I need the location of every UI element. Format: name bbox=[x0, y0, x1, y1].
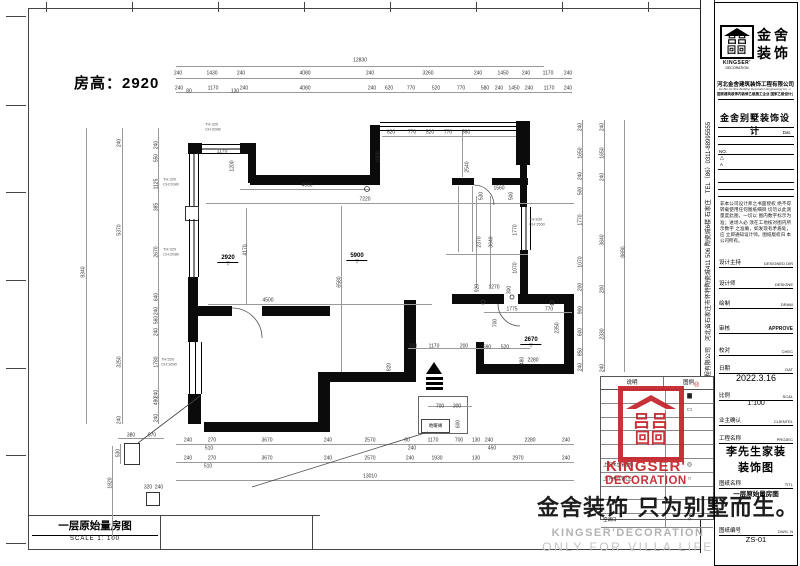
dim-label: 2370 bbox=[478, 236, 483, 247]
dim-label: 700 bbox=[436, 405, 444, 410]
dim-label: 5370 bbox=[118, 224, 123, 235]
department-title: 金舍别墅装饰设计 bbox=[717, 111, 793, 137]
dim-label: 300 bbox=[409, 345, 417, 350]
window-size-label: TH:520CH:1690 bbox=[161, 358, 177, 367]
dim-label: 4080 bbox=[299, 87, 310, 92]
dim-label: 240 bbox=[579, 363, 584, 371]
dim-label: 7220 bbox=[359, 198, 370, 203]
titleblock-value: 装饰图 bbox=[719, 459, 793, 475]
dim-label: 1170 bbox=[429, 345, 440, 350]
titleblock-field: 设计主持DESIGNED DIR bbox=[719, 258, 793, 268]
dim-label: 240 bbox=[485, 439, 493, 444]
brand-name: 装饰 bbox=[757, 43, 791, 63]
dim-label: 240 bbox=[324, 457, 332, 462]
dim-label: 450 bbox=[488, 447, 496, 452]
dim-label: 530 bbox=[480, 192, 485, 200]
dim-label: 500 bbox=[510, 192, 515, 200]
brand-name-en: DECORATION bbox=[719, 66, 755, 70]
dim-label: 4080 bbox=[299, 72, 310, 77]
level-mark: 2920▽ bbox=[217, 246, 238, 266]
window-size-label: TH:320CH:2080 bbox=[163, 178, 179, 187]
dim-label: 770 bbox=[407, 87, 415, 92]
dim-label: 490 bbox=[155, 397, 160, 405]
dim-label: 820 bbox=[388, 363, 393, 371]
dim-label: 1170 bbox=[208, 87, 219, 92]
dim-label: 700 bbox=[455, 439, 463, 444]
dim-label: 1070 bbox=[579, 256, 584, 267]
dim-label: 240 bbox=[155, 486, 163, 491]
registered-mark: ® bbox=[694, 382, 699, 389]
dim-label: 240 bbox=[601, 173, 606, 181]
dim-label: 3670 bbox=[261, 457, 272, 462]
brand-name: 金舍 bbox=[757, 25, 791, 45]
dim-label: 1770 bbox=[579, 214, 584, 225]
dim-label: 300 bbox=[508, 286, 513, 294]
dim-label: 1170 bbox=[544, 87, 555, 92]
dim-label: 130 bbox=[472, 439, 480, 444]
titleblock-field: 校对CHEC bbox=[719, 346, 793, 356]
dim-label: 2970 bbox=[512, 457, 523, 462]
dim-label: 130 bbox=[231, 90, 239, 95]
date-label: Dat. bbox=[783, 130, 791, 135]
dim-label: 240 bbox=[155, 414, 160, 422]
dim-label: 130 bbox=[472, 457, 480, 462]
dim-label: 520 bbox=[432, 87, 440, 92]
dim-label: 770 bbox=[408, 131, 416, 136]
titleblock-value: 2022.3.16 bbox=[719, 373, 793, 383]
dim-label: 4170 bbox=[244, 244, 249, 255]
dim-label: 2330 bbox=[601, 328, 606, 339]
watermark-slogan: 金舍装饰 只为别墅而生。 bbox=[537, 490, 799, 522]
dim-label: 3260 bbox=[422, 72, 433, 77]
dim-label: 1070 bbox=[514, 262, 519, 273]
titleblock-field: 绘制DRAW bbox=[719, 299, 793, 309]
logo-wordmark: DECORATION bbox=[596, 475, 696, 487]
dim-label: 1820 bbox=[109, 477, 114, 488]
dim-label: 240 bbox=[474, 72, 482, 77]
dim-label: 80 bbox=[186, 90, 192, 95]
dim-label: 700 bbox=[494, 319, 499, 327]
dim-label: 380 bbox=[127, 434, 135, 439]
dim-label: 1560 bbox=[493, 187, 504, 192]
dim-label: 4560 bbox=[301, 184, 312, 189]
dim-label: 600 bbox=[457, 420, 462, 428]
titleblock-value: 1:100 bbox=[719, 400, 793, 407]
window-size-label: TH:830CH:1560 bbox=[529, 218, 545, 227]
dim-label: 2280 bbox=[524, 439, 535, 444]
dim-label: 240 bbox=[237, 72, 245, 77]
logo-wordmark: KINGSER' bbox=[596, 458, 696, 475]
dim-label: 2350 bbox=[556, 322, 561, 333]
dim-label: 13010 bbox=[363, 475, 377, 480]
dim-label: 1775 bbox=[506, 308, 517, 313]
dim-label: 850 bbox=[579, 348, 584, 356]
dim-label: 1770 bbox=[514, 224, 519, 235]
dim-label: 620 bbox=[385, 87, 393, 92]
dim-label: 3670 bbox=[261, 439, 272, 444]
dim-label: 270 bbox=[208, 439, 216, 444]
watermark-tagline-en: ONLY FOR VILLA LIFE bbox=[520, 540, 736, 554]
dim-label: 8690 bbox=[622, 246, 627, 257]
logo-square: 吕吕 回回 bbox=[618, 386, 684, 462]
dim-label: 550 bbox=[155, 154, 160, 162]
dim-label: 1450 bbox=[497, 72, 508, 77]
dim-label: 240 bbox=[368, 87, 376, 92]
dim-label: 200 bbox=[460, 345, 468, 350]
dim-label: 240 bbox=[118, 139, 123, 147]
dim-label: 4500 bbox=[262, 299, 273, 304]
dim-label: 520 bbox=[426, 131, 434, 136]
dim-label: 240 bbox=[240, 87, 248, 92]
dim-label: 2540 bbox=[466, 161, 471, 172]
dim-label: 1125 bbox=[155, 179, 160, 190]
revision-mark: △ bbox=[720, 155, 724, 161]
dim-label: 2280 bbox=[527, 359, 538, 364]
dim-label: 1170 bbox=[428, 439, 439, 444]
dim-label: 300 bbox=[453, 405, 461, 410]
dim-label: 240 bbox=[408, 447, 416, 452]
logo-glyph: 回回 bbox=[722, 46, 752, 55]
dim-label: 240 bbox=[175, 87, 183, 92]
dim-label: 2670 bbox=[155, 246, 160, 257]
dim-label: 2570 bbox=[364, 457, 375, 462]
dim-label: 240 bbox=[366, 72, 374, 77]
dim-label: 240 bbox=[525, 87, 533, 92]
dim-label: 240 bbox=[155, 328, 160, 336]
titleblock-field: 审核APPROVE bbox=[719, 324, 793, 334]
dim-label: 240 bbox=[324, 439, 332, 444]
titleblock-field: 业主确认CLIENTEL bbox=[719, 416, 793, 426]
dim-label: 385 bbox=[155, 203, 160, 211]
dim-label: 500 bbox=[579, 187, 584, 195]
dim-label: 580 bbox=[462, 131, 470, 136]
dim-label: 580 bbox=[481, 87, 489, 92]
level-mark: 2670▽ bbox=[520, 328, 541, 348]
dim-label: 60 bbox=[404, 439, 410, 444]
dim-label: 1780 bbox=[155, 356, 160, 367]
dim-label: 2570 bbox=[364, 439, 375, 444]
dim-label: 1200 bbox=[231, 160, 236, 171]
dim-label: 1170 bbox=[217, 150, 228, 155]
dim-label: 520 bbox=[501, 346, 509, 351]
dim-label: 240 bbox=[564, 87, 572, 92]
revision-a: A bbox=[720, 162, 723, 167]
dim-label: 1650 bbox=[579, 147, 584, 158]
dim-label: 530 bbox=[117, 449, 122, 457]
dim-label: 240 bbox=[155, 141, 160, 149]
dim-label: 240 bbox=[564, 72, 572, 77]
dim-label: 240 bbox=[495, 87, 503, 92]
level-mark: 5900▽ bbox=[346, 244, 367, 264]
dim-label: 200 bbox=[579, 283, 584, 291]
window-size-label: TH:320CH:2080 bbox=[163, 248, 179, 257]
dim-label: 770 bbox=[545, 308, 553, 313]
dim-label: 620 bbox=[387, 131, 395, 136]
dim-label: 240 bbox=[579, 123, 584, 131]
dim-label: 560 bbox=[155, 316, 160, 324]
dim-label: 1650 bbox=[601, 147, 606, 158]
logo-glyph: 吕吕 bbox=[623, 413, 679, 430]
dim-label: 240 bbox=[184, 457, 192, 462]
dim-label: 240 bbox=[174, 72, 182, 77]
dim-label: 240 bbox=[601, 123, 606, 131]
certification-line: 国家建筑装饰内装修乙级施工企业 国家乙级设计企业 bbox=[717, 92, 793, 97]
dim-label: 1860 bbox=[377, 151, 382, 162]
dim-label: 3640 bbox=[490, 236, 495, 247]
dim-label: 640 bbox=[155, 293, 160, 301]
dim-label: 3250 bbox=[118, 356, 123, 367]
dim-label: 480 bbox=[521, 357, 526, 365]
disclaimer-text: 非本公司设计师之书面授权 绝不得转载使用任何图纸细目 切勿以此测量度此图，一切以… bbox=[720, 201, 791, 244]
dim-label: 690 bbox=[483, 346, 491, 351]
watermark-brand-en: KINGSER'DECORATION bbox=[520, 527, 736, 539]
dim-label: 240 bbox=[406, 457, 414, 462]
dim-label: 240 bbox=[522, 72, 530, 77]
dim-label: 240 bbox=[184, 439, 192, 444]
title-block: 吕吕 回回 金舍 装饰 KINGSER' DECORATION 河北金舍建筑装饰… bbox=[714, 2, 798, 566]
drain-symbol bbox=[426, 362, 442, 374]
titleblock-value: 李先生家装 bbox=[719, 443, 793, 459]
dim-label: 12830 bbox=[353, 59, 367, 64]
dim-label: 510 bbox=[204, 465, 212, 470]
drawing-sheet: 一层原始量房图 SCALE 1: 100 房高：2920 bbox=[0, 0, 800, 566]
dim-label: 240 bbox=[601, 364, 606, 372]
window-size-label: TH:320CH:2080 bbox=[205, 123, 221, 132]
dim-label: 270 bbox=[208, 457, 216, 462]
dim-label: 1930 bbox=[431, 457, 442, 462]
dim-label: 1170 bbox=[543, 72, 554, 77]
dim-label: 600 bbox=[579, 328, 584, 336]
dim-label: 1270 bbox=[488, 286, 499, 291]
logo-glyph: 回回 bbox=[623, 431, 679, 446]
dim-label: 770 bbox=[444, 131, 452, 136]
dim-label: 770 bbox=[457, 87, 465, 92]
dim-label: 240 bbox=[155, 307, 160, 315]
company-name-en: He Bei Jin She Building Decoration Engin… bbox=[717, 87, 793, 91]
kingser-logo: 吕吕 回回 bbox=[720, 25, 754, 59]
dim-label: 200 bbox=[601, 285, 606, 293]
dim-label: 510 bbox=[205, 447, 213, 452]
titleblock-field: 设计师DESIGNE bbox=[719, 279, 793, 289]
dim-label: 320 bbox=[144, 486, 152, 491]
dim-label: 240 bbox=[562, 457, 570, 462]
dim-label: 1430 bbox=[206, 72, 217, 77]
dim-label: 240 bbox=[579, 172, 584, 180]
dim-label: 970 bbox=[148, 434, 156, 439]
dim-label: 6580 bbox=[338, 276, 343, 287]
dim-label: 240 bbox=[562, 439, 570, 444]
kingser-red-logo: 吕吕 回回 KINGSER' DECORATION bbox=[596, 384, 706, 496]
dim-label: 1450 bbox=[508, 87, 519, 92]
dim-label: 900 bbox=[579, 306, 584, 314]
dim-label: 9340 bbox=[82, 266, 87, 277]
dim-label: 920 bbox=[476, 284, 481, 292]
dim-label: 240 bbox=[118, 416, 123, 424]
dim-label: 3640 bbox=[601, 234, 606, 245]
